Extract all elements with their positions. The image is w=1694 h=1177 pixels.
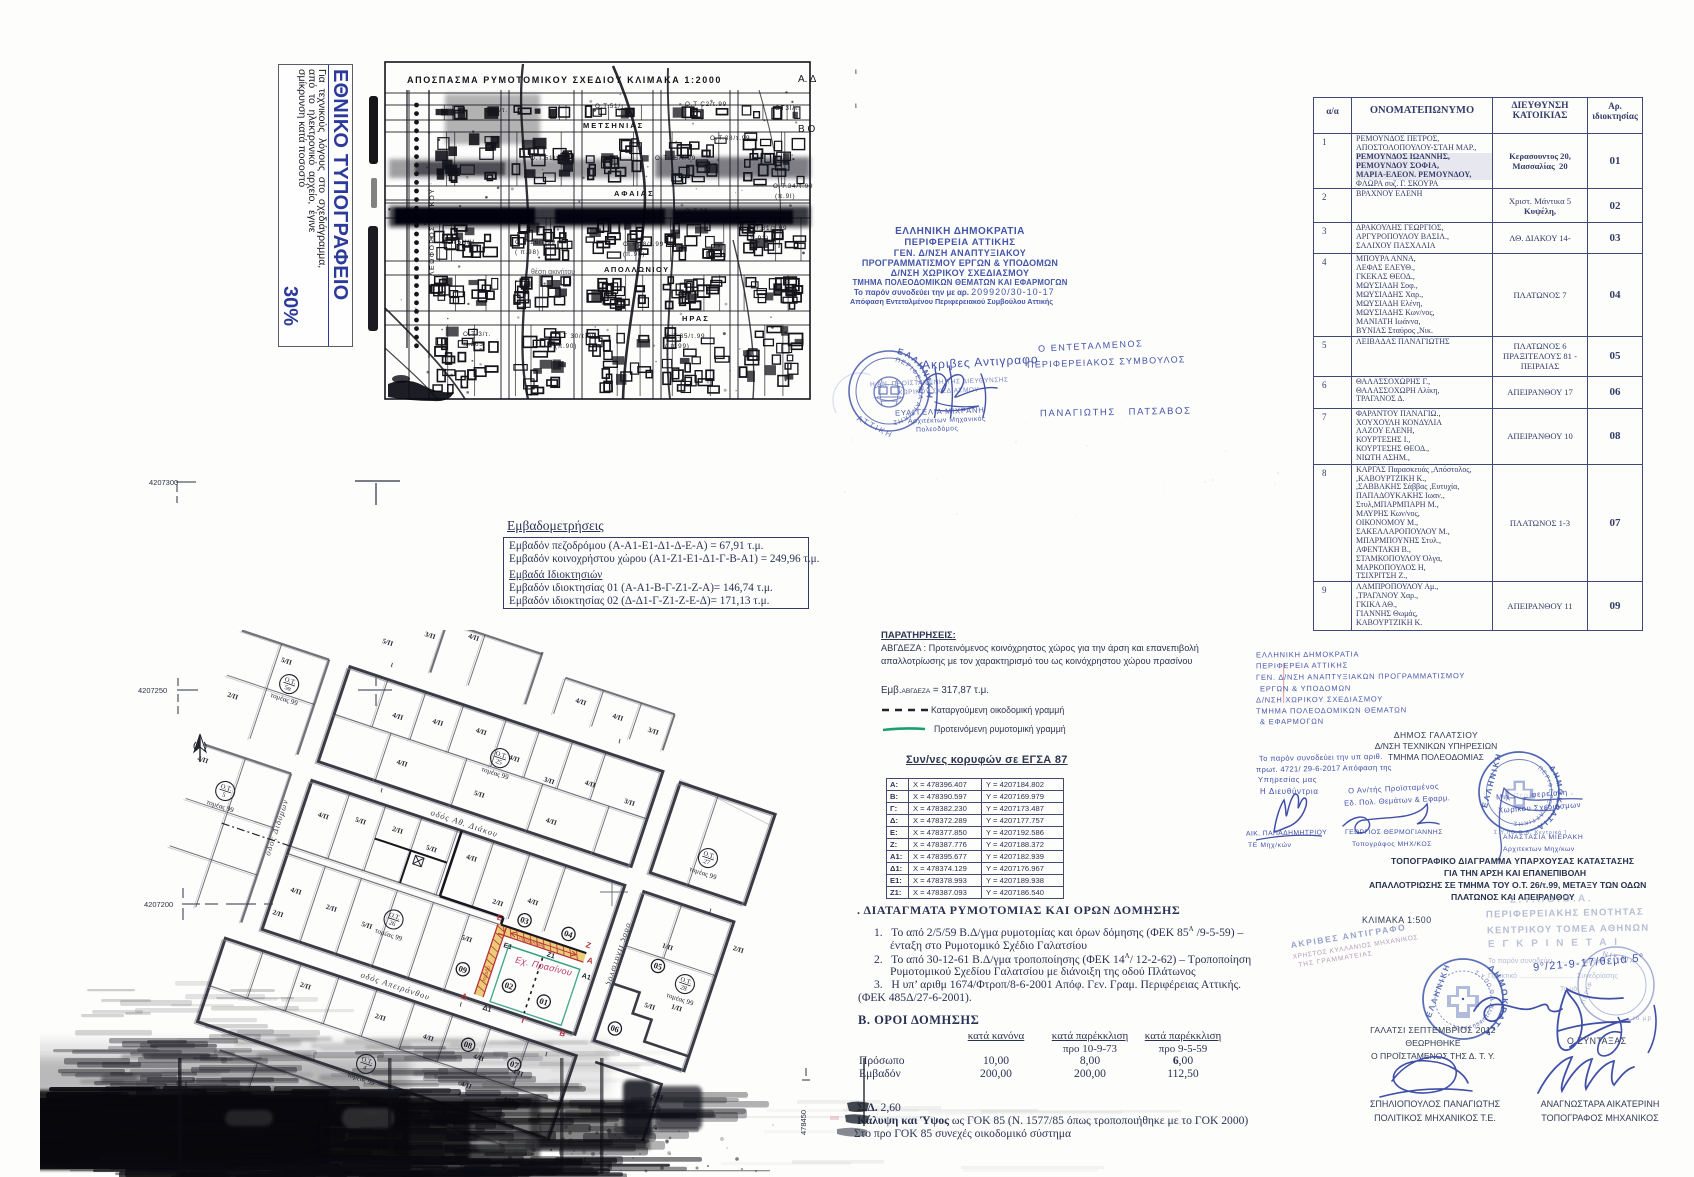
- svg-text:4/Π: 4/Π: [611, 712, 624, 723]
- svg-text:4/Π: 4/Π: [431, 717, 444, 728]
- svg-text:1/Π: 1/Π: [661, 941, 674, 952]
- svg-text:ΟΤ5Ν/Η: ΟΤ5Ν/Η: [447, 239, 475, 246]
- svg-text:27: 27: [702, 858, 711, 867]
- svg-text:5/Π: 5/Π: [473, 789, 486, 800]
- svg-text:05: 05: [652, 960, 663, 972]
- svg-text:4/Π: 4/Π: [475, 726, 488, 737]
- svg-text:2/Π: 2/Π: [226, 691, 239, 702]
- svg-text:3/Π: 3/Π: [424, 630, 437, 641]
- svg-text:3/Π: 3/Π: [647, 726, 660, 737]
- svg-text:Ο.Τ.38/τ.99: Ο.Τ.38/τ.99: [710, 135, 750, 142]
- svg-text:Ε1: Ε1: [502, 942, 512, 951]
- svg-text:ι: ι: [379, 784, 385, 794]
- svg-text:2/Π: 2/Π: [391, 825, 404, 836]
- svg-text:Ο.Τ 30/τ.99: Ο.Τ 30/τ.99: [555, 333, 596, 340]
- svg-text:Ζ: Ζ: [585, 940, 593, 950]
- svg-text:4/Π: 4/Π: [465, 853, 478, 864]
- svg-text:4/Π: 4/Π: [508, 753, 521, 764]
- svg-text:5: 5: [221, 791, 226, 799]
- svg-text:Α. Δ: Α. Δ: [798, 74, 817, 85]
- svg-text:ΑΤΤΙΚΗ: ΑΤΤΙΚΗ: [855, 414, 894, 440]
- svg-text:25: 25: [494, 758, 502, 767]
- svg-text:4/Π: 4/Π: [574, 696, 587, 707]
- svg-text:01: 01: [538, 995, 549, 1007]
- svg-text:4207250: 4207250: [138, 686, 167, 695]
- svg-text:4/Π: 4/Π: [396, 758, 409, 769]
- svg-text:5/Π: 5/Π: [643, 1001, 656, 1012]
- svg-text:τομέας 99: τομέας 99: [688, 865, 718, 882]
- svg-text:Ο.Τ C2/τ.99: Ο.Τ C2/τ.99: [685, 101, 727, 108]
- svg-text:5/Π: 5/Π: [360, 920, 373, 931]
- svg-text:Β Ο: Β Ο: [798, 124, 815, 135]
- svg-text:4/Π: 4/Π: [391, 711, 404, 722]
- svg-text:5/Π: 5/Π: [460, 933, 473, 944]
- svg-text:2/Π: 2/Π: [299, 981, 312, 992]
- svg-text:ι: ι: [617, 735, 623, 745]
- svg-text:4/Π: 4/Π: [317, 810, 330, 821]
- svg-text:2/Π: 2/Π: [732, 944, 745, 955]
- svg-text:5α: 5α: [283, 684, 292, 693]
- svg-text:4/Π: 4/Π: [526, 896, 539, 907]
- svg-text:τομέας 99: τομέας 99: [374, 926, 404, 943]
- svg-text:Ο.Τ.35/τ.99: Ο.Τ.35/τ.99: [665, 333, 705, 340]
- svg-text:ΑΦΑΙΑΣ: ΑΦΑΙΑΣ: [614, 189, 655, 198]
- svg-text:2/Π: 2/Π: [325, 903, 338, 914]
- svg-text:Ο.Τ.51/τ.: Ο.Τ.51/τ.: [595, 103, 627, 110]
- svg-text:(π.90): (π.90): [555, 343, 577, 350]
- svg-text:( π.99): ( π.99): [665, 343, 690, 350]
- svg-text:ΟΤ3Ι/τ.: ΟΤ3Ι/τ.: [775, 105, 801, 112]
- svg-text:ι: ι: [855, 67, 857, 76]
- svg-text:ι: ι: [458, 998, 464, 1008]
- svg-text:ι: ι: [855, 101, 857, 110]
- svg-text:π.265: π.265: [463, 341, 484, 348]
- svg-text:ΛΕΩΦΟΡΟΣ ΒΕΪΚΟΥ: ΛΕΩΦΟΡΟΣ ΒΕΪΚΟΥ: [428, 188, 436, 276]
- svg-text:Εχ. Πρασίνου: Εχ. Πρασίνου: [514, 955, 573, 978]
- svg-text:478450: 478450: [799, 1110, 808, 1135]
- svg-text:3/Π: 3/Π: [623, 797, 636, 808]
- svg-text:ΗΡΑΣ: ΗΡΑΣ: [682, 314, 710, 323]
- svg-text:Ο.Τ 3/τ.: Ο.Τ 3/τ.: [463, 331, 491, 338]
- svg-text:5/Π: 5/Π: [354, 816, 367, 827]
- svg-text:Δ1: Δ1: [481, 1005, 492, 1015]
- svg-text:Ο.Τ 28/τ.99: Ο.Τ 28/τ.99: [623, 241, 664, 248]
- svg-text:4207200: 4207200: [144, 900, 173, 909]
- svg-text:ι: ι: [390, 659, 396, 669]
- svg-text:09: 09: [457, 963, 468, 975]
- svg-text:4/Π: 4/Π: [545, 816, 558, 827]
- svg-text:θέση ακινήτου: θέση ακινήτου: [531, 268, 575, 276]
- svg-text:5/Π: 5/Π: [425, 843, 438, 854]
- svg-text:03: 03: [519, 914, 530, 926]
- svg-text:(π.9Ι): (π.9Ι): [775, 193, 795, 200]
- svg-text:Ο.Τ 26/τ.99: Ο.Τ 26/τ.99: [515, 239, 556, 246]
- svg-text:4207300: 4207300: [149, 478, 178, 487]
- svg-text:2/Π: 2/Π: [271, 908, 284, 919]
- svg-text:Α: Α: [586, 955, 595, 965]
- svg-text:28: 28: [679, 984, 687, 993]
- svg-text:τομέας 99: τομέας 99: [269, 691, 299, 708]
- svg-text:4/Π: 4/Π: [290, 886, 303, 897]
- svg-text:5/Π: 5/Π: [381, 637, 394, 648]
- svg-text:2/Π: 2/Π: [491, 897, 504, 908]
- svg-text:ΑΠΟΣΠΑΣΜΑ ΡΥΜΟΤΟΜΙΚΟΥ ΣΧΕΔΙΟΥ: ΑΠΟΣΠΑΣΜΑ ΡΥΜΟΤΟΜΙΚΟΥ ΣΧΕΔΙΟΥ ΚΛΙΜΑΚΑ 1:…: [407, 75, 722, 85]
- svg-text:26: 26: [388, 919, 397, 928]
- svg-text:02: 02: [503, 980, 514, 992]
- svg-text:(π.91): (π.91): [747, 235, 769, 242]
- svg-text:4/Π: 4/Π: [196, 754, 209, 765]
- svg-text:1/Π: 1/Π: [670, 1003, 683, 1014]
- svg-text:2/Π: 2/Π: [374, 1012, 387, 1023]
- svg-text:ΝΙΚΑΙΑ: ΝΙΚΑΙΑ: [1602, 951, 1638, 966]
- svg-text:5/Π: 5/Π: [280, 656, 293, 667]
- svg-text:(π.98): (π.98): [623, 251, 645, 258]
- svg-text:06: 06: [609, 1022, 620, 1034]
